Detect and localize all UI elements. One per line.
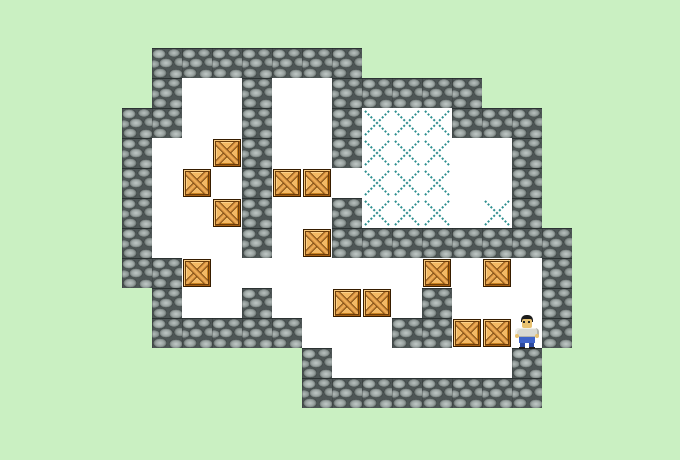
wall-tile xyxy=(272,48,302,78)
wall-tile xyxy=(242,78,272,108)
floor-tile xyxy=(152,198,182,228)
wall-tile xyxy=(512,348,542,378)
crate-cross-icon xyxy=(486,262,508,284)
crate xyxy=(452,318,482,348)
wall-tile xyxy=(482,108,512,138)
wall-tile xyxy=(182,48,212,78)
floor-tile xyxy=(182,288,212,318)
player-face xyxy=(522,319,532,328)
wall-tile xyxy=(242,138,272,168)
goal-tile xyxy=(392,108,422,138)
crate-cross-icon xyxy=(216,202,238,224)
floor-tile xyxy=(392,348,422,378)
floor-tile xyxy=(272,228,302,258)
crate xyxy=(182,168,212,198)
floor-tile xyxy=(512,258,542,288)
wall-tile xyxy=(512,168,542,198)
wall-tile xyxy=(362,378,392,408)
floor-tile xyxy=(182,198,212,228)
wall-tile xyxy=(152,288,182,318)
floor-tile xyxy=(482,168,512,198)
wall-tile xyxy=(542,228,572,258)
wall-tile xyxy=(122,228,152,258)
wall-tile xyxy=(242,48,272,78)
goal-tile xyxy=(482,198,512,228)
floor-tile xyxy=(272,288,302,318)
wall-tile xyxy=(242,168,272,198)
crate-cross-icon xyxy=(456,322,478,344)
wall-tile xyxy=(392,318,422,348)
floor-tile xyxy=(212,258,242,288)
wall-tile xyxy=(122,258,152,288)
floor-tile xyxy=(182,108,212,138)
crate-cross-icon xyxy=(366,292,388,314)
wall-tile xyxy=(152,318,182,348)
goal-tile xyxy=(362,108,392,138)
floor-tile xyxy=(272,108,302,138)
floor-tile xyxy=(332,318,362,348)
floor-tile xyxy=(272,258,302,288)
floor-tile xyxy=(452,198,482,228)
floor-tile xyxy=(482,348,512,378)
crate xyxy=(212,138,242,168)
crate xyxy=(302,228,332,258)
floor-tile xyxy=(182,258,212,288)
goal-tile xyxy=(392,198,422,228)
wall-tile xyxy=(152,108,182,138)
floor-tile xyxy=(452,288,482,318)
crate xyxy=(482,318,512,348)
crate xyxy=(332,288,362,318)
crate-cross-icon xyxy=(276,172,298,194)
floor-tile xyxy=(302,78,332,108)
floor-tile xyxy=(482,288,512,318)
crate-cross-icon xyxy=(186,262,208,284)
wall-tile xyxy=(392,378,422,408)
crate-cross-icon xyxy=(336,292,358,314)
wall-tile xyxy=(332,198,362,228)
floor-tile xyxy=(332,348,362,378)
wall-tile xyxy=(302,48,332,78)
goal-tile xyxy=(422,168,452,198)
floor-tile xyxy=(182,138,212,168)
floor-tile xyxy=(392,288,422,318)
floor-tile xyxy=(152,168,182,198)
floor-tile xyxy=(212,228,242,258)
wall-tile xyxy=(122,198,152,228)
goal-tile xyxy=(422,198,452,228)
floor-tile xyxy=(302,228,332,258)
floor-tile xyxy=(482,258,512,288)
crate-cross-icon xyxy=(426,262,448,284)
wall-tile xyxy=(122,168,152,198)
crate xyxy=(212,198,242,228)
wall-tile xyxy=(542,258,572,288)
wall-tile xyxy=(512,108,542,138)
floor-tile xyxy=(512,288,542,318)
floor-tile xyxy=(272,78,302,108)
wall-tile xyxy=(212,318,242,348)
wall-tile xyxy=(212,48,242,78)
wall-tile xyxy=(362,78,392,108)
wall-tile xyxy=(422,78,452,108)
floor-tile xyxy=(422,258,452,288)
crate xyxy=(302,168,332,198)
wall-tile xyxy=(482,228,512,258)
floor-tile xyxy=(182,168,212,198)
wall-tile xyxy=(542,318,572,348)
goal-tile xyxy=(362,168,392,198)
floor-tile xyxy=(392,258,422,288)
wall-tile xyxy=(362,228,392,258)
floor-tile xyxy=(302,288,332,318)
floor-tile xyxy=(332,288,362,318)
wall-tile xyxy=(242,228,272,258)
player-right-hand xyxy=(535,334,539,338)
wall-tile xyxy=(242,198,272,228)
crate-cross-icon xyxy=(306,232,328,254)
wall-tile xyxy=(422,318,452,348)
wall-tile xyxy=(182,318,212,348)
floor-tile xyxy=(212,198,242,228)
wall-tile xyxy=(542,288,572,318)
wall-tile xyxy=(422,228,452,258)
crate xyxy=(482,258,512,288)
floor-tile xyxy=(482,318,512,348)
wall-tile xyxy=(512,228,542,258)
floor-tile xyxy=(272,168,302,198)
floor-tile xyxy=(452,348,482,378)
wall-tile xyxy=(332,108,362,138)
wall-tile xyxy=(392,228,422,258)
floor-tile xyxy=(362,348,392,378)
wall-tile xyxy=(482,378,512,408)
floor-tile xyxy=(452,318,482,348)
floor-tile xyxy=(182,78,212,108)
wall-tile xyxy=(452,378,482,408)
wall-tile xyxy=(152,258,182,288)
floor-tile xyxy=(332,258,362,288)
wall-tile xyxy=(332,48,362,78)
wall-tile xyxy=(242,288,272,318)
floor-tile xyxy=(212,138,242,168)
floor-tile xyxy=(152,138,182,168)
wall-tile xyxy=(392,78,422,108)
goal-tile xyxy=(392,168,422,198)
crate xyxy=(272,168,302,198)
wall-tile xyxy=(242,318,272,348)
floor-tile xyxy=(452,168,482,198)
floor-tile xyxy=(272,138,302,168)
wall-tile xyxy=(422,378,452,408)
player-character xyxy=(515,315,539,349)
player-right-foot xyxy=(529,347,535,349)
floor-tile xyxy=(452,138,482,168)
floor-tile xyxy=(362,288,392,318)
crate xyxy=(182,258,212,288)
floor-tile xyxy=(302,108,332,138)
wall-tile xyxy=(452,228,482,258)
floor-tile xyxy=(302,168,332,198)
wall-tile xyxy=(122,108,152,138)
floor-tile xyxy=(362,258,392,288)
floor-tile xyxy=(512,318,542,348)
floor-tile xyxy=(272,198,302,228)
wall-tile xyxy=(452,108,482,138)
floor-tile xyxy=(182,228,212,258)
wall-tile xyxy=(512,198,542,228)
crate-cross-icon xyxy=(186,172,208,194)
goal-tile xyxy=(392,138,422,168)
player-left-foot xyxy=(519,347,525,349)
floor-tile xyxy=(452,258,482,288)
game-screen xyxy=(0,0,680,460)
floor-tile xyxy=(482,138,512,168)
wall-tile xyxy=(512,138,542,168)
goal-tile xyxy=(362,198,392,228)
wall-tile xyxy=(122,138,152,168)
sokoban-board[interactable] xyxy=(0,0,680,460)
wall-tile xyxy=(302,378,332,408)
crate xyxy=(422,258,452,288)
wall-tile xyxy=(272,318,302,348)
crate-cross-icon xyxy=(216,142,238,164)
wall-tile xyxy=(302,348,332,378)
wall-tile xyxy=(152,48,182,78)
floor-tile xyxy=(212,168,242,198)
goal-tile xyxy=(422,138,452,168)
goal-tile xyxy=(362,138,392,168)
wall-tile xyxy=(332,138,362,168)
floor-tile xyxy=(302,318,332,348)
floor-tile xyxy=(302,258,332,288)
wall-tile xyxy=(152,78,182,108)
wall-tile xyxy=(332,378,362,408)
floor-tile xyxy=(302,198,332,228)
crate xyxy=(362,288,392,318)
crate-cross-icon xyxy=(486,322,508,344)
floor-tile xyxy=(362,318,392,348)
floor-tile xyxy=(212,78,242,108)
floor-tile xyxy=(212,108,242,138)
wall-tile xyxy=(242,108,272,138)
wall-tile xyxy=(422,288,452,318)
floor-tile xyxy=(332,168,362,198)
floor-tile xyxy=(422,348,452,378)
floor-tile xyxy=(242,258,272,288)
floor-tile xyxy=(152,228,182,258)
wall-tile xyxy=(452,78,482,108)
crate-cross-icon xyxy=(306,172,328,194)
wall-tile xyxy=(332,78,362,108)
wall-tile xyxy=(332,228,362,258)
floor-tile xyxy=(302,138,332,168)
wall-tile xyxy=(512,378,542,408)
goal-tile xyxy=(422,108,452,138)
floor-tile xyxy=(212,288,242,318)
